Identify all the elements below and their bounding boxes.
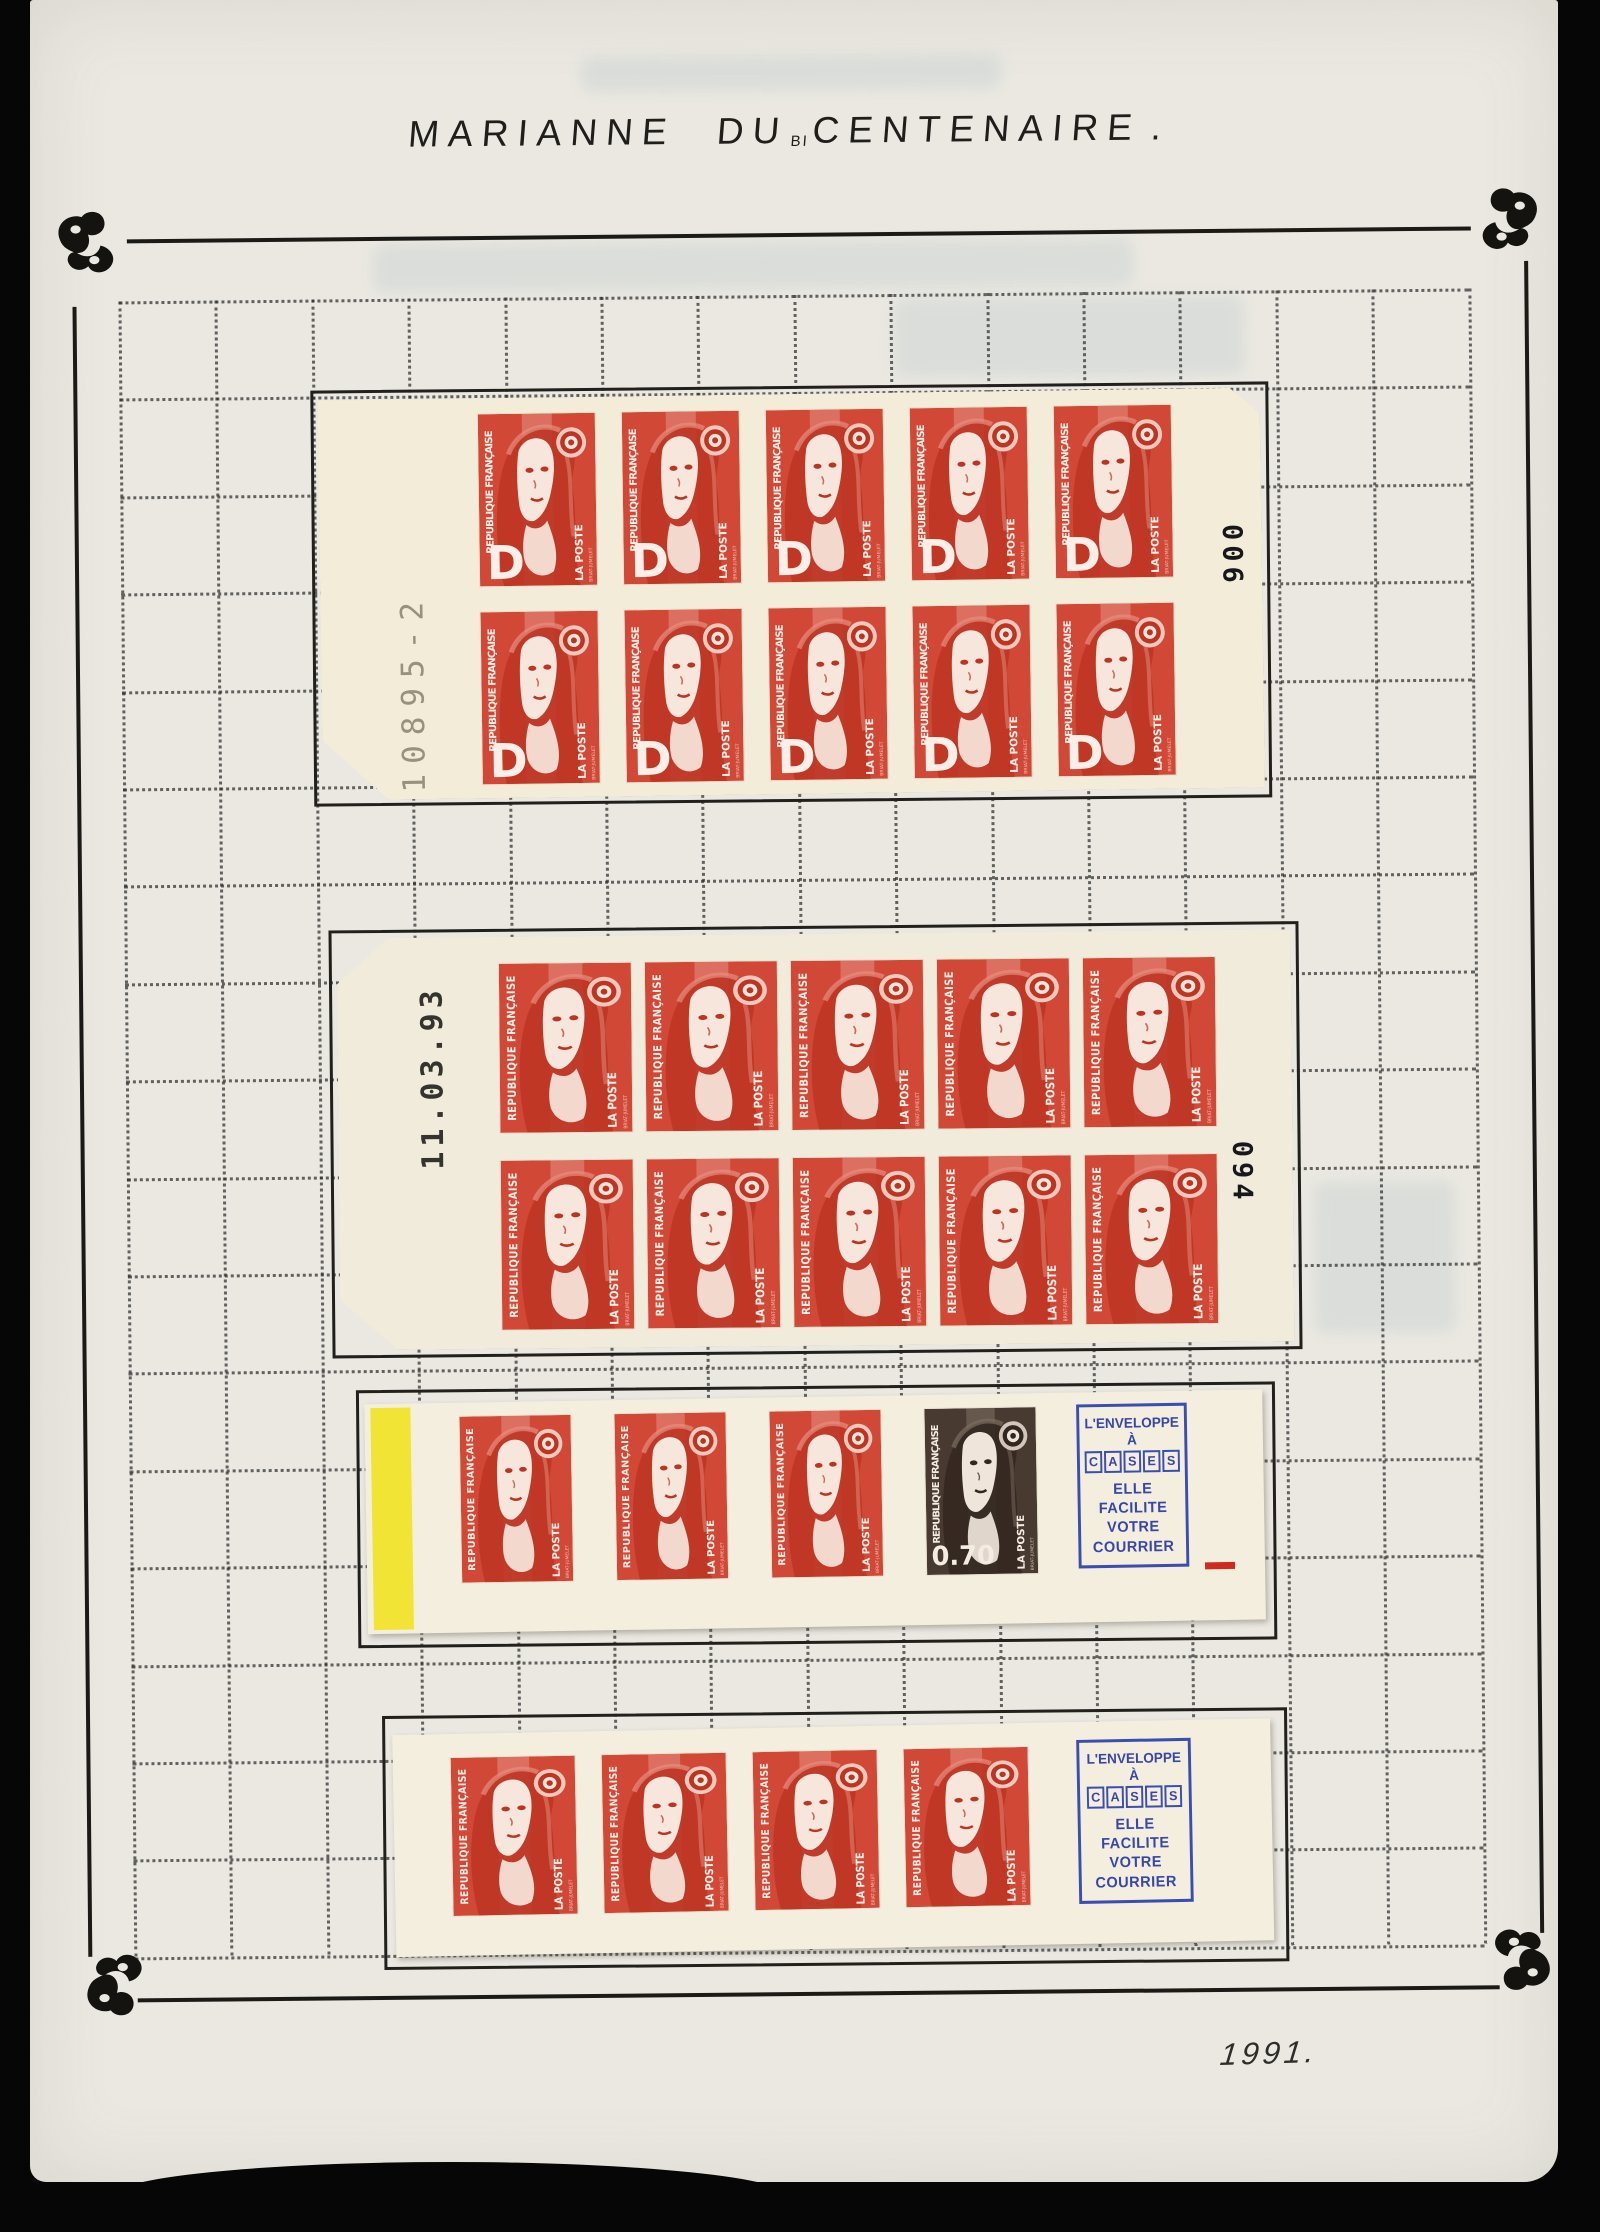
cover-line: ELLE: [1081, 1814, 1190, 1835]
svg-text:BRIAT-JUMELET: BRIAT-JUMELET: [1164, 539, 1170, 574]
svg-text:BRIAT-JUMELET: BRIAT-JUMELET: [735, 743, 741, 778]
cases-letter-box: E: [1143, 1450, 1161, 1472]
svg-text:BRIAT-JUMELET: BRIAT-JUMELET: [625, 1292, 632, 1326]
page-border-top: [127, 226, 1471, 243]
stamp-marianne-red-tvp: REPUBLIQUE FRANÇAISE LA POSTE BRIAT-JUME…: [793, 1157, 927, 1327]
svg-text:BRIAT-JUMELET: BRIAT-JUMELET: [732, 545, 738, 580]
title-small-insert: BI: [790, 133, 810, 150]
stamp-marianne-red-d: REPUBLIQUE FRANÇAISE LA POSTE BRIAT-JUME…: [481, 611, 600, 785]
cover-line: FACILITE: [1081, 1833, 1190, 1854]
page-content: MARIANNE DUBICENTENAIRE. 10895-2: [21, 0, 1570, 2189]
svg-text:LA POSTE: LA POSTE: [717, 522, 730, 579]
bleedthrough-ghost: [893, 296, 1244, 377]
page-title: MARIANNE DUBICENTENAIRE.: [20, 103, 1551, 160]
svg-text:LA POSTE: LA POSTE: [720, 720, 733, 777]
cases-letter-box: S: [1164, 1785, 1182, 1807]
cover-line: ELLE: [1080, 1479, 1185, 1500]
svg-text:LA POSTE: LA POSTE: [1005, 518, 1018, 575]
mount-frame: 10895-2 REPUBLIQUE FRANÇAISE LA POSTE BR…: [310, 381, 1272, 806]
svg-text:BRIAT-JUMELET: BRIAT-JUMELET: [1167, 737, 1173, 772]
cover-line: À: [1080, 1766, 1189, 1784]
svg-text:0.70: 0.70: [931, 1541, 995, 1572]
page-border-bottom: [138, 1985, 1500, 2002]
stamp-marianne-red-d: REPUBLIQUE FRANÇAISE LA POSTE BRIAT-JUME…: [912, 605, 1031, 779]
printing-number-label: 10895-2: [394, 592, 433, 793]
title-text: MARIANNE DU: [407, 110, 790, 155]
svg-text:LA POSTE: LA POSTE: [552, 1858, 566, 1910]
svg-text:LA POSTE: LA POSTE: [551, 1522, 563, 1577]
stamp-marianne-red-tvp: REPUBLIQUE FRANÇAISE LA POSTE BRIAT-JUME…: [499, 963, 633, 1133]
stamp-marianne-red-d: REPUBLIQUE FRANÇAISE LA POSTE BRIAT-JUME…: [624, 609, 743, 783]
svg-text:BRIAT-JUMELET: BRIAT-JUMELET: [874, 1539, 880, 1573]
stamp-marianne-red-d: REPUBLIQUE FRANÇAISE LA POSTE BRIAT-JUME…: [478, 413, 597, 587]
svg-text:D: D: [1062, 527, 1101, 578]
svg-text:BRIAT-JUMELET: BRIAT-JUMELET: [1063, 1288, 1070, 1322]
stamp-marianne-red-tvp: REPUBLIQUE FRANÇAISE LA POSTE BRIAT-JUME…: [459, 1415, 573, 1583]
stamp-marianne-red-tvp: REPUBLIQUE FRANÇAISE LA POSTE BRIAT-JUME…: [451, 1756, 578, 1916]
stamp-marianne-red-tvp: REPUBLIQUE FRANÇAISE LA POSTE BRIAT-JUME…: [602, 1753, 729, 1913]
carnet-strip-tvp: REPUBLIQUE FRANÇAISE LA POSTE BRIAT-JUME…: [392, 1718, 1274, 1957]
cover-line: COURRIER: [1081, 1536, 1186, 1557]
svg-text:BRIAT-JUMELET: BRIAT-JUMELET: [917, 1289, 924, 1323]
svg-text:LA POSTE: LA POSTE: [1152, 714, 1165, 771]
svg-text:LA POSTE: LA POSTE: [861, 1517, 873, 1572]
counter-number: 006: [1216, 524, 1248, 588]
cases-letter-box: S: [1126, 1786, 1144, 1808]
cover-line: VOTRE: [1081, 1517, 1186, 1538]
stamp-marianne-red-d: REPUBLIQUE FRANÇAISE LA POSTE BRIAT-JUME…: [1056, 603, 1175, 777]
cover-line: L'ENVELOPPE: [1079, 1749, 1188, 1767]
svg-text:BRIAT-JUMELET: BRIAT-JUMELET: [719, 1876, 726, 1908]
svg-text:LA POSTE: LA POSTE: [899, 1266, 913, 1322]
svg-text:BRIAT-JUMELET: BRIAT-JUMELET: [1023, 739, 1029, 774]
svg-text:D: D: [633, 731, 672, 782]
svg-text:LA POSTE: LA POSTE: [607, 1269, 621, 1325]
cases-letter-box: A: [1106, 1786, 1124, 1808]
cases-letter-box: A: [1104, 1451, 1122, 1473]
svg-text:LA POSTE: LA POSTE: [854, 1852, 868, 1904]
svg-text:REPUBLIQUE FRANÇAISE: REPUBLIQUE FRANÇAISE: [504, 976, 519, 1121]
stamp-marianne-red-tvp: REPUBLIQUE FRANÇAISE LA POSTE BRIAT-JUME…: [769, 1410, 883, 1578]
mount-frame: 11.03.93 REPUBLIQUE FRANÇAISE LA POSTE B…: [328, 921, 1302, 1358]
svg-text:BRIAT-JUMELET: BRIAT-JUMELET: [1020, 541, 1026, 576]
title-period: .: [1149, 106, 1164, 147]
grid-dotted-line: [1371, 289, 1390, 1944]
yellow-phosphor-stripe: [370, 1408, 414, 1631]
svg-text:LA POSTE: LA POSTE: [1016, 1515, 1028, 1570]
stamp-marianne-red-tvp: REPUBLIQUE FRANÇAISE LA POSTE BRIAT-JUME…: [753, 1750, 880, 1910]
svg-text:REPUBLIQUE FRANÇAISE: REPUBLIQUE FRANÇAISE: [798, 1170, 813, 1315]
page-border-right: [1524, 261, 1544, 1933]
svg-text:REPUBLIQUE FRANÇAISE: REPUBLIQUE FRANÇAISE: [944, 1168, 959, 1313]
svg-text:LA POSTE: LA POSTE: [1043, 1068, 1057, 1124]
mount-frame: REPUBLIQUE FRANÇAISE LA POSTE BRIAT-JUME…: [356, 1381, 1277, 1648]
svg-text:REPUBLIQUE FRANÇAISE: REPUBLIQUE FRANÇAISE: [1090, 1167, 1105, 1312]
carnet-cover-panel: L'ENVELOPPE À CASES ELLE FACILITE VOTRE …: [1076, 1738, 1194, 1904]
svg-text:BRIAT-JUMELET: BRIAT-JUMELET: [769, 1094, 776, 1128]
cover-line: L'ENVELOPPE: [1079, 1414, 1184, 1432]
svg-text:D: D: [774, 531, 813, 582]
svg-text:BRIAT-JUMELET: BRIAT-JUMELET: [719, 1542, 725, 1576]
corner-flourish-icon: [73, 1944, 150, 2021]
cases-letter-box: S: [1123, 1450, 1141, 1472]
svg-text:BRIAT-JUMELET: BRIAT-JUMELET: [1207, 1089, 1214, 1123]
carnet-cover-panel: L'ENVELOPPE À CASES ELLE FACILITE VOTRE …: [1076, 1403, 1189, 1569]
counter-number: 094: [1226, 1141, 1258, 1205]
cases-letter-box: C: [1085, 1451, 1103, 1473]
cases-letter-box: E: [1145, 1785, 1163, 1807]
grid-dotted-line: [214, 301, 233, 1956]
photo-backdrop: MARIANNE DUBICENTENAIRE. 10895-2: [0, 0, 1600, 2228]
svg-text:BRIAT-JUMELET: BRIAT-JUMELET: [1209, 1286, 1216, 1320]
svg-text:D: D: [486, 535, 525, 586]
stamp-marianne-red-d: REPUBLIQUE FRANÇAISE LA POSTE BRIAT-JUME…: [1054, 405, 1173, 579]
svg-text:LA POSTE: LA POSTE: [864, 718, 877, 775]
svg-text:D: D: [918, 529, 957, 580]
svg-text:REPUBLIQUE FRANÇAISE: REPUBLIQUE FRANÇAISE: [796, 973, 811, 1118]
stamp-marianne-red-tvp: REPUBLIQUE FRANÇAISE LA POSTE BRIAT-JUME…: [904, 1747, 1031, 1907]
svg-text:BRIAT-JUMELET: BRIAT-JUMELET: [591, 745, 597, 780]
title-text-2: CENTENAIRE: [811, 107, 1143, 151]
svg-text:LA POSTE: LA POSTE: [753, 1268, 767, 1324]
carnet-strip-070: REPUBLIQUE FRANÇAISE LA POSTE BRIAT-JUME…: [364, 1389, 1266, 1634]
svg-text:LA POSTE: LA POSTE: [1149, 516, 1162, 573]
stamp-marianne-red-d: REPUBLIQUE FRANÇAISE LA POSTE BRIAT-JUME…: [768, 607, 887, 781]
cover-line: COURRIER: [1082, 1871, 1191, 1892]
svg-text:BRIAT-JUMELET: BRIAT-JUMELET: [1021, 1870, 1028, 1902]
svg-text:REPUBLIQUE FRANÇAISE: REPUBLIQUE FRANÇAISE: [652, 1171, 667, 1316]
svg-text:D: D: [1065, 725, 1104, 776]
corner-flourish-icon: [45, 206, 122, 283]
bleedthrough-ghost: [1314, 1182, 1455, 1333]
svg-text:REPUBLIQUE FRANÇAISE: REPUBLIQUE FRANÇAISE: [1088, 970, 1103, 1115]
svg-text:REPUBLIQUE FRANÇAISE: REPUBLIQUE FRANÇAISE: [930, 1424, 943, 1543]
svg-text:LA POSTE: LA POSTE: [751, 1071, 765, 1127]
stamp-marianne-red-tvp: REPUBLIQUE FRANÇAISE LA POSTE BRIAT-JUME…: [791, 960, 925, 1130]
cover-line: VOTRE: [1081, 1852, 1190, 1873]
corner-flourish-icon: [1474, 183, 1551, 260]
svg-text:LA POSTE: LA POSTE: [576, 722, 589, 779]
svg-text:LA POSTE: LA POSTE: [573, 524, 586, 581]
booklet-pane-letter-d: 10895-2 REPUBLIQUE FRANÇAISE LA POSTE BR…: [318, 387, 1265, 800]
stamp-marianne-red-tvp: REPUBLIQUE FRANÇAISE LA POSTE BRIAT-JUME…: [645, 961, 779, 1131]
album-page: MARIANNE DUBICENTENAIRE. 10895-2: [30, 0, 1558, 2182]
svg-text:LA POSTE: LA POSTE: [1005, 1849, 1019, 1901]
cases-letter-box: S: [1162, 1450, 1180, 1472]
stamp-marianne-red-tvp: REPUBLIQUE FRANÇAISE LA POSTE BRIAT-JUME…: [614, 1412, 728, 1580]
svg-text:LA POSTE: LA POSTE: [706, 1520, 718, 1575]
svg-text:LA POSTE: LA POSTE: [1189, 1066, 1203, 1122]
svg-text:BRIAT-JUMELET: BRIAT-JUMELET: [915, 1092, 922, 1126]
stamp-marianne-red-tvp: REPUBLIQUE FRANÇAISE LA POSTE BRIAT-JUME…: [1085, 1154, 1219, 1324]
stamp-marianne-red-tvp: REPUBLIQUE FRANÇAISE LA POSTE BRIAT-JUME…: [939, 1155, 1073, 1325]
svg-text:BRIAT-JUMELET: BRIAT-JUMELET: [771, 1291, 778, 1325]
stamp-marianne-brown-070: REPUBLIQUE FRANÇAISE LA POSTE BRIAT-JUME…: [924, 1407, 1038, 1575]
svg-text:D: D: [777, 729, 816, 780]
printing-date-label: 11.03.93: [415, 985, 452, 1170]
bleedthrough-ghost: [373, 239, 1133, 292]
svg-text:BRIAT-JUMELET: BRIAT-JUMELET: [1029, 1537, 1035, 1571]
svg-text:BRIAT-JUMELET: BRIAT-JUMELET: [879, 741, 885, 776]
stamp-marianne-red-d: REPUBLIQUE FRANÇAISE LA POSTE BRIAT-JUME…: [910, 407, 1029, 581]
cases-letter-box: C: [1087, 1786, 1105, 1808]
stamp-marianne-red-d: REPUBLIQUE FRANÇAISE LA POSTE BRIAT-JUME…: [622, 411, 741, 585]
svg-text:BRIAT-JUMELET: BRIAT-JUMELET: [870, 1873, 877, 1905]
cover-line: À: [1079, 1431, 1184, 1449]
svg-text:LA POSTE: LA POSTE: [605, 1072, 619, 1128]
svg-text:BRIAT-JUMELET: BRIAT-JUMELET: [876, 543, 882, 578]
grid-dotted-line: [118, 301, 137, 1956]
svg-text:BRIAT-JUMELET: BRIAT-JUMELET: [623, 1095, 630, 1129]
svg-text:D: D: [921, 727, 960, 778]
grid-lines: [21, 0, 1549, 7]
svg-text:REPUBLIQUE FRANÇAISE: REPUBLIQUE FRANÇAISE: [942, 971, 957, 1116]
svg-text:LA POSTE: LA POSTE: [897, 1069, 911, 1125]
corner-flourish-icon: [1487, 1919, 1564, 1996]
stamp-marianne-red-d: REPUBLIQUE FRANÇAISE LA POSTE BRIAT-JUME…: [766, 409, 885, 583]
stamp-marianne-red-tvp: REPUBLIQUE FRANÇAISE LA POSTE BRIAT-JUME…: [937, 958, 1071, 1128]
svg-text:REPUBLIQUE FRANÇAISE: REPUBLIQUE FRANÇAISE: [650, 974, 665, 1119]
svg-text:BRIAT-JUMELET: BRIAT-JUMELET: [564, 1544, 570, 1578]
cover-line: FACILITE: [1081, 1498, 1186, 1519]
svg-text:BRIAT-JUMELET: BRIAT-JUMELET: [1061, 1091, 1068, 1125]
svg-text:LA POSTE: LA POSTE: [1045, 1265, 1059, 1321]
mount-frame: REPUBLIQUE FRANÇAISE LA POSTE BRIAT-JUME…: [382, 1707, 1289, 1970]
svg-text:BRIAT-JUMELET: BRIAT-JUMELET: [588, 547, 594, 582]
bleedthrough-ghost: [581, 54, 1001, 92]
scan-edge: [110, 2162, 790, 2232]
year-note: 1991.: [1218, 2034, 1320, 2073]
booklet-pane-tvp: 11.03.93 REPUBLIQUE FRANÇAISE LA POSTE B…: [337, 929, 1295, 1350]
red-registration-mark: [1205, 1562, 1235, 1569]
stamp-marianne-red-tvp: REPUBLIQUE FRANÇAISE LA POSTE BRIAT-JUME…: [501, 1160, 635, 1330]
svg-text:LA POSTE: LA POSTE: [703, 1855, 717, 1907]
svg-text:LA POSTE: LA POSTE: [861, 520, 874, 577]
cases-boxed-letters: CASES: [1080, 1785, 1189, 1809]
svg-text:D: D: [489, 733, 528, 784]
svg-text:LA POSTE: LA POSTE: [1008, 716, 1021, 773]
cases-boxed-letters: CASES: [1080, 1450, 1185, 1474]
page-border-left: [72, 307, 92, 1957]
stamp-marianne-red-tvp: REPUBLIQUE FRANÇAISE LA POSTE BRIAT-JUME…: [647, 1158, 781, 1328]
svg-text:LA POSTE: LA POSTE: [1191, 1263, 1205, 1319]
stamp-marianne-red-tvp: REPUBLIQUE FRANÇAISE LA POSTE BRIAT-JUME…: [1083, 957, 1217, 1127]
grid-dotted-line: [1468, 288, 1487, 1943]
svg-text:BRIAT-JUMELET: BRIAT-JUMELET: [568, 1879, 575, 1911]
svg-text:D: D: [630, 533, 669, 584]
svg-text:REPUBLIQUE FRANÇAISE: REPUBLIQUE FRANÇAISE: [506, 1173, 521, 1318]
